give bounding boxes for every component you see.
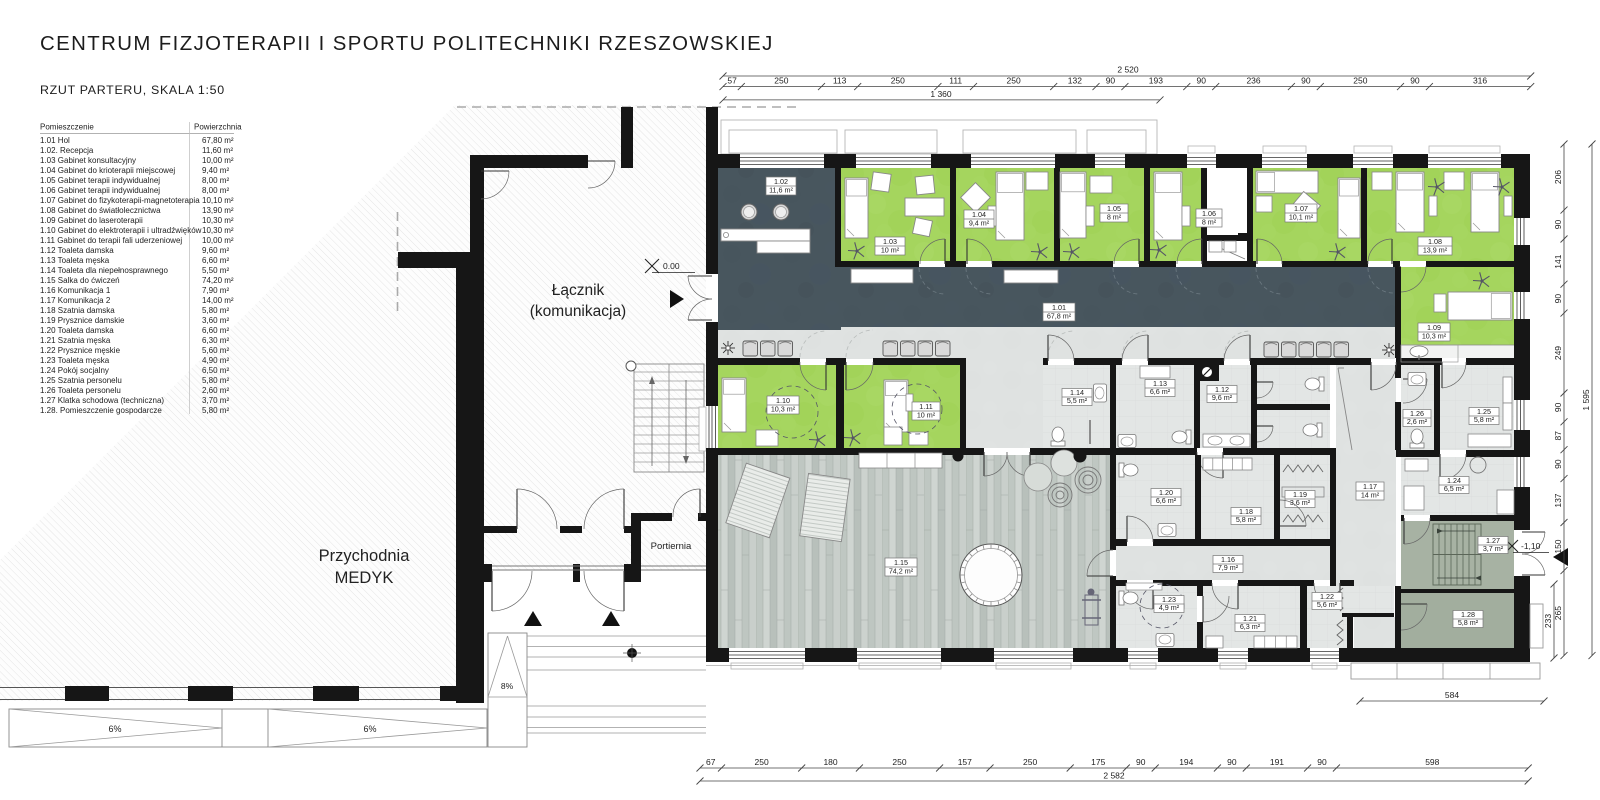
svg-text:1.21 Szatnia męska: 1.21 Szatnia męska	[40, 336, 111, 345]
svg-text:Portiernia: Portiernia	[651, 541, 692, 552]
svg-text:265: 265	[1553, 606, 1563, 620]
svg-text:10,00 m²: 10,00 m²	[202, 156, 234, 165]
svg-text:6,30 m²: 6,30 m²	[202, 336, 229, 345]
svg-text:157: 157	[958, 757, 972, 767]
svg-text:Przychodnia: Przychodnia	[319, 547, 411, 565]
svg-text:1.19 Prysznice damskie: 1.19 Prysznice damskie	[40, 316, 125, 325]
svg-text:9,60 m²: 9,60 m²	[202, 246, 229, 255]
svg-text:67,80 m²: 67,80 m²	[202, 136, 234, 145]
svg-text:Powierzchnia: Powierzchnia	[194, 123, 242, 132]
svg-text:1.11 Gabinet do terapii fali u: 1.11 Gabinet do terapii fali uderzeniowe…	[40, 236, 182, 245]
svg-text:10,10 m²: 10,10 m²	[202, 196, 234, 205]
svg-text:250: 250	[1007, 75, 1021, 85]
svg-text:8 m²: 8 m²	[1202, 217, 1217, 226]
svg-text:1.20 Toaleta damska: 1.20 Toaleta damska	[40, 326, 114, 335]
svg-text:Pomieszczenie: Pomieszczenie	[40, 123, 94, 132]
svg-text:5,8 m²: 5,8 m²	[1474, 415, 1495, 424]
svg-text:10 m²: 10 m²	[917, 410, 936, 419]
svg-text:8,00 m²: 8,00 m²	[202, 186, 229, 195]
svg-text:250: 250	[892, 757, 906, 767]
svg-text:5,80 m²: 5,80 m²	[202, 406, 229, 415]
svg-text:90: 90	[1136, 757, 1146, 767]
svg-text:233: 233	[1543, 614, 1553, 628]
svg-text:1.17 Komunikacja 2: 1.17 Komunikacja 2	[40, 296, 111, 305]
svg-text:10,3 m²: 10,3 m²	[1422, 331, 1447, 340]
svg-text:1.09 Gabinet do laseroterapii: 1.09 Gabinet do laseroterapii	[40, 216, 143, 225]
svg-text:13,9 m²: 13,9 m²	[1423, 245, 1448, 254]
svg-text:87: 87	[1553, 431, 1563, 441]
svg-text:1 595: 1 595	[1581, 389, 1591, 411]
svg-text:11,60 m²: 11,60 m²	[202, 146, 233, 155]
svg-text:9,6 m²: 9,6 m²	[1212, 393, 1233, 402]
svg-text:6,60 m²: 6,60 m²	[202, 326, 229, 335]
svg-text:MEDYK: MEDYK	[335, 569, 394, 587]
svg-text:7,9 m²: 7,9 m²	[1218, 563, 1239, 572]
svg-text:194: 194	[1179, 757, 1193, 767]
svg-text:1.03 Gabinet konsultacyjny: 1.03 Gabinet konsultacyjny	[40, 156, 136, 165]
svg-text:10,3 m²: 10,3 m²	[771, 404, 796, 413]
svg-text:14,00 m²: 14,00 m²	[202, 296, 234, 305]
svg-text:8%: 8%	[501, 681, 514, 691]
svg-text:1.22 Prysznice męskie: 1.22 Prysznice męskie	[40, 346, 121, 355]
svg-text:9,40 m²: 9,40 m²	[202, 166, 229, 175]
svg-text:90: 90	[1553, 402, 1563, 412]
svg-text:1.04 Gabinet do krioterapii mi: 1.04 Gabinet do krioterapii miejscowej	[40, 166, 175, 175]
svg-text:206: 206	[1553, 170, 1563, 184]
svg-text:(komunikacja): (komunikacja)	[530, 303, 626, 320]
svg-text:2,60 m²: 2,60 m²	[202, 386, 229, 395]
svg-text:1.16 Komunikacja 1: 1.16 Komunikacja 1	[40, 286, 111, 295]
svg-text:1.26 Toaleta personelu: 1.26 Toaleta personelu	[40, 386, 121, 395]
svg-text:1.14 Toaleta dla niepełnospraw: 1.14 Toaleta dla niepełnosprawnego	[40, 266, 169, 275]
svg-text:1.07 Gabinet do fizykoterapii-: 1.07 Gabinet do fizykoterapii-magnetoter…	[40, 196, 200, 205]
svg-text:5,60 m²: 5,60 m²	[202, 346, 229, 355]
svg-text:90: 90	[1317, 757, 1327, 767]
svg-text:90: 90	[1197, 75, 1207, 85]
svg-text:2 520: 2 520	[1117, 65, 1139, 75]
svg-text:6,6 m²: 6,6 m²	[1156, 496, 1177, 505]
svg-text:1.18 Szatnia damska: 1.18 Szatnia damska	[40, 306, 115, 315]
svg-text:1.13 Toaleta męska: 1.13 Toaleta męska	[40, 256, 110, 265]
svg-text:236: 236	[1246, 75, 1260, 85]
svg-text:2 582: 2 582	[1103, 771, 1125, 781]
svg-text:1.23 Toaleta męska: 1.23 Toaleta męska	[40, 356, 110, 365]
svg-text:8 m²: 8 m²	[1107, 212, 1122, 221]
svg-text:132: 132	[1068, 75, 1082, 85]
svg-text:1.01 Hol: 1.01 Hol	[40, 136, 70, 145]
svg-text:250: 250	[1353, 75, 1367, 85]
svg-text:4,9 m²: 4,9 m²	[1159, 603, 1180, 612]
svg-text:1.06 Gabinet terapii indywidua: 1.06 Gabinet terapii indywidualnej	[40, 186, 160, 195]
svg-text:RZUT PARTERU, SKALA 1:50: RZUT PARTERU, SKALA 1:50	[40, 83, 225, 97]
svg-text:6,3 m²: 6,3 m²	[1240, 622, 1261, 631]
svg-text:250: 250	[1023, 757, 1037, 767]
svg-text:14 m²: 14 m²	[1361, 490, 1380, 499]
svg-text:9,4 m²: 9,4 m²	[969, 218, 990, 227]
svg-text:250: 250	[774, 75, 788, 85]
svg-text:137: 137	[1553, 493, 1563, 507]
svg-text:6,6 m²: 6,6 m²	[1150, 387, 1171, 396]
svg-text:13,90 m²: 13,90 m²	[202, 206, 234, 215]
svg-text:1.27 Klatka schodowa (technicz: 1.27 Klatka schodowa (techniczna)	[40, 396, 164, 405]
svg-text:1.05 Gabinet terapii indywidua: 1.05 Gabinet terapii indywidualnej	[40, 176, 160, 185]
svg-text:67: 67	[706, 757, 716, 767]
svg-text:150: 150	[1553, 539, 1563, 553]
svg-text:74,2 m²: 74,2 m²	[889, 566, 914, 575]
svg-text:10 m²: 10 m²	[881, 245, 900, 254]
svg-text:141: 141	[1553, 254, 1563, 268]
svg-text:-1,10: -1,10	[1521, 541, 1541, 551]
svg-text:74,20 m²: 74,20 m²	[202, 276, 234, 285]
svg-text:6%: 6%	[363, 724, 376, 734]
svg-text:Łącznik: Łącznik	[552, 282, 605, 299]
svg-text:90: 90	[1553, 294, 1563, 304]
svg-text:57: 57	[727, 75, 737, 85]
svg-text:1.08 Gabinet do światłolecznic: 1.08 Gabinet do światłolecznictwa	[40, 206, 161, 215]
svg-text:5,50 m²: 5,50 m²	[202, 266, 229, 275]
svg-text:7,90 m²: 7,90 m²	[202, 286, 229, 295]
svg-text:1 360: 1 360	[930, 89, 952, 99]
svg-text:180: 180	[823, 757, 837, 767]
svg-text:250: 250	[891, 75, 905, 85]
svg-text:5,80 m²: 5,80 m²	[202, 376, 229, 385]
svg-text:6,50 m²: 6,50 m²	[202, 366, 229, 375]
svg-text:8,00 m²: 8,00 m²	[202, 176, 229, 185]
svg-text:175: 175	[1091, 757, 1105, 767]
svg-text:90: 90	[1410, 75, 1420, 85]
svg-text:3,6 m²: 3,6 m²	[1290, 498, 1311, 507]
svg-text:316: 316	[1473, 75, 1487, 85]
svg-text:90: 90	[1553, 459, 1563, 469]
svg-text:6,5 m²: 6,5 m²	[1444, 484, 1465, 493]
svg-text:5,80 m²: 5,80 m²	[202, 306, 229, 315]
svg-text:10,30 m²: 10,30 m²	[202, 216, 234, 225]
svg-text:1.28. Pomieszczenie gospodarcz: 1.28. Pomieszczenie gospodarcze	[40, 406, 162, 415]
svg-text:1.25 Szatnia personelu: 1.25 Szatnia personelu	[40, 376, 122, 385]
svg-text:90: 90	[1553, 220, 1563, 230]
svg-text:113: 113	[833, 75, 847, 85]
svg-text:10,1 m²: 10,1 m²	[1289, 212, 1314, 221]
svg-text:2,6 m²: 2,6 m²	[1407, 417, 1428, 426]
svg-text:1.10 Gabinet do elektroterapii: 1.10 Gabinet do elektroterapii i ultradź…	[40, 226, 202, 235]
svg-text:5,8 m²: 5,8 m²	[1236, 515, 1257, 524]
svg-text:1.15 Salka do ćwiczeń: 1.15 Salka do ćwiczeń	[40, 276, 120, 285]
svg-text:191: 191	[1270, 757, 1284, 767]
svg-text:CENTRUM FIZJOTERAPII I SPORTU: CENTRUM FIZJOTERAPII I SPORTU POLITECHNI…	[40, 33, 774, 55]
svg-text:1.12 Toaleta damska: 1.12 Toaleta damska	[40, 246, 114, 255]
svg-text:5,8 m²: 5,8 m²	[1458, 618, 1479, 627]
svg-text:5,6 m²: 5,6 m²	[1317, 600, 1338, 609]
svg-text:3,60 m²: 3,60 m²	[202, 316, 229, 325]
svg-text:3,70 m²: 3,70 m²	[202, 396, 229, 405]
svg-text:584: 584	[1445, 690, 1459, 700]
svg-text:10,00 m²: 10,00 m²	[202, 236, 234, 245]
svg-text:1.02. Recepcja: 1.02. Recepcja	[40, 146, 94, 155]
svg-text:11,6 m²: 11,6 m²	[769, 185, 793, 194]
svg-text:90: 90	[1106, 75, 1116, 85]
svg-text:1.24 Pokój socjalny: 1.24 Pokój socjalny	[40, 366, 109, 375]
svg-text:10,30 m²: 10,30 m²	[202, 226, 234, 235]
svg-text:6,60 m²: 6,60 m²	[202, 256, 229, 265]
svg-text:250: 250	[755, 757, 769, 767]
svg-text:4,90 m²: 4,90 m²	[202, 356, 229, 365]
svg-text:67,8 m²: 67,8 m²	[1047, 311, 1072, 320]
svg-text:598: 598	[1425, 757, 1439, 767]
svg-text:3,7 m²: 3,7 m²	[1483, 544, 1504, 553]
svg-text:6%: 6%	[108, 724, 121, 734]
svg-text:90: 90	[1301, 75, 1311, 85]
svg-text:193: 193	[1149, 75, 1163, 85]
svg-text:5,5 m²: 5,5 m²	[1067, 396, 1088, 405]
svg-text:111: 111	[949, 75, 962, 85]
svg-text:249: 249	[1553, 346, 1563, 360]
svg-text:90: 90	[1227, 757, 1237, 767]
svg-text:0.00: 0.00	[663, 261, 680, 271]
